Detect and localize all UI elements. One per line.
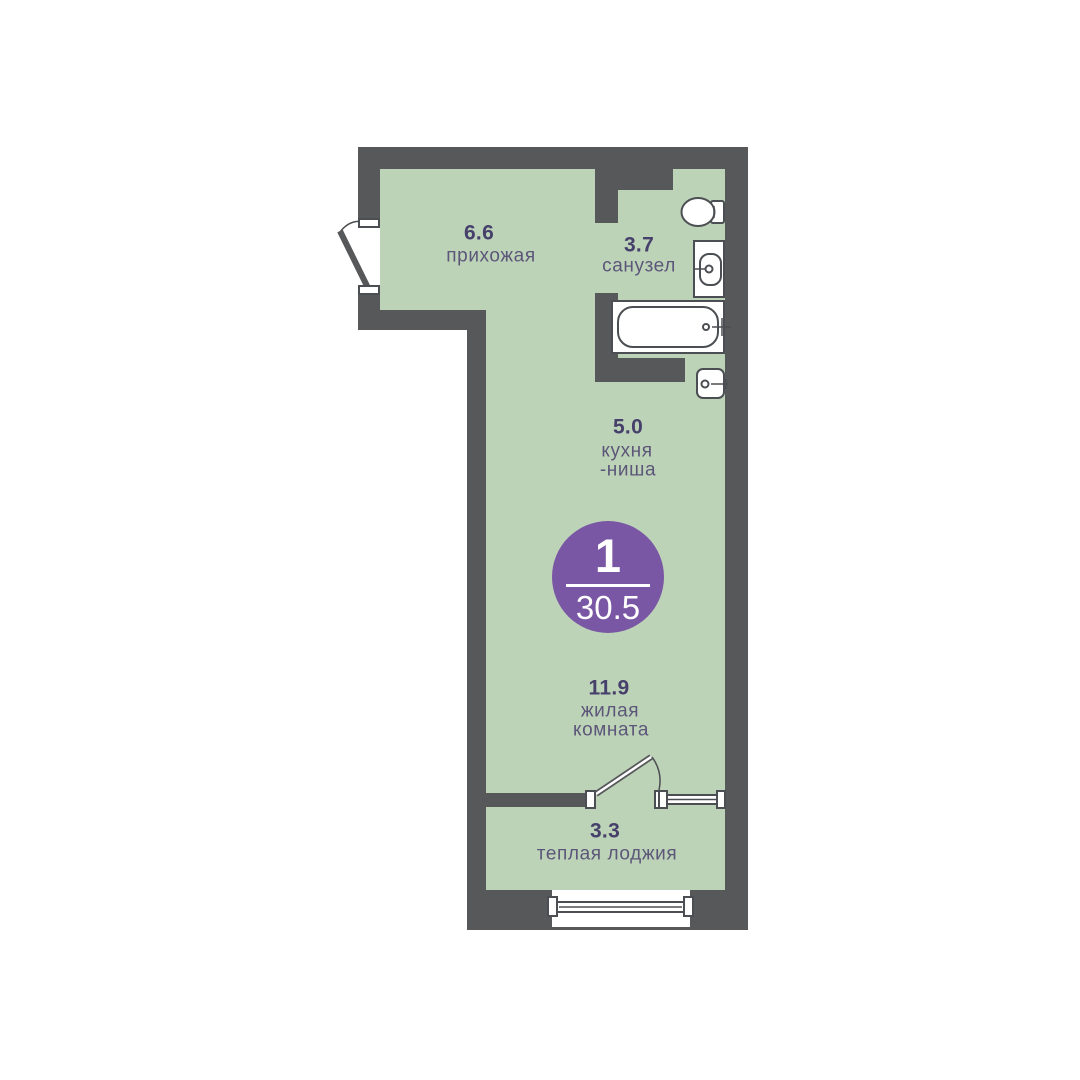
kitchen-area-label: 5.0 [613, 417, 643, 438]
wall-segment [358, 310, 486, 330]
wall-segment [467, 890, 552, 930]
living-name-label: жилая [581, 702, 639, 721]
wall-segment [725, 147, 748, 930]
wall-segment [486, 793, 588, 807]
hallway-name-label: прихожая [446, 247, 535, 266]
loggia-name-label: теплая лоджия [537, 845, 678, 864]
bathroom-sink-icon [694, 241, 724, 297]
living-name-label2: комната [573, 721, 649, 740]
wall-segment [595, 358, 685, 382]
wall-segment [690, 890, 748, 930]
bathroom-area-label: 3.7 [624, 235, 654, 256]
total-area: 30.5 [576, 591, 640, 624]
kitchen-name-label2: -ниша [600, 461, 656, 480]
wall-segment [467, 310, 486, 930]
wall-segment [358, 147, 380, 222]
bathtub-icon [612, 301, 731, 353]
living-area-label: 11.9 [589, 678, 630, 699]
wall-segment [358, 147, 748, 169]
bathroom-name-label: санузел [602, 257, 676, 276]
toilet-icon [682, 198, 725, 226]
loggia-area-label: 3.3 [590, 821, 620, 842]
hallway-area-label: 6.6 [464, 223, 494, 244]
entrance-door-icon [340, 219, 379, 294]
kitchen-name-label: кухня [601, 442, 652, 461]
room-floors [380, 169, 725, 890]
floorplan: 6.6 прихожая 3.7 санузел 5.0 кухня -ниша… [0, 0, 1080, 1080]
floorplan-canvas [0, 0, 1080, 1080]
badge-divider [566, 584, 650, 587]
rooms-count: 1 [595, 532, 621, 579]
apartment-badge: 1 30.5 [552, 521, 664, 633]
bottom-window-icon [548, 897, 693, 916]
kitchen-sink-icon [697, 369, 729, 398]
wall-segment [595, 169, 618, 223]
wall-segment [617, 169, 673, 190]
wall-segment [552, 927, 690, 930]
